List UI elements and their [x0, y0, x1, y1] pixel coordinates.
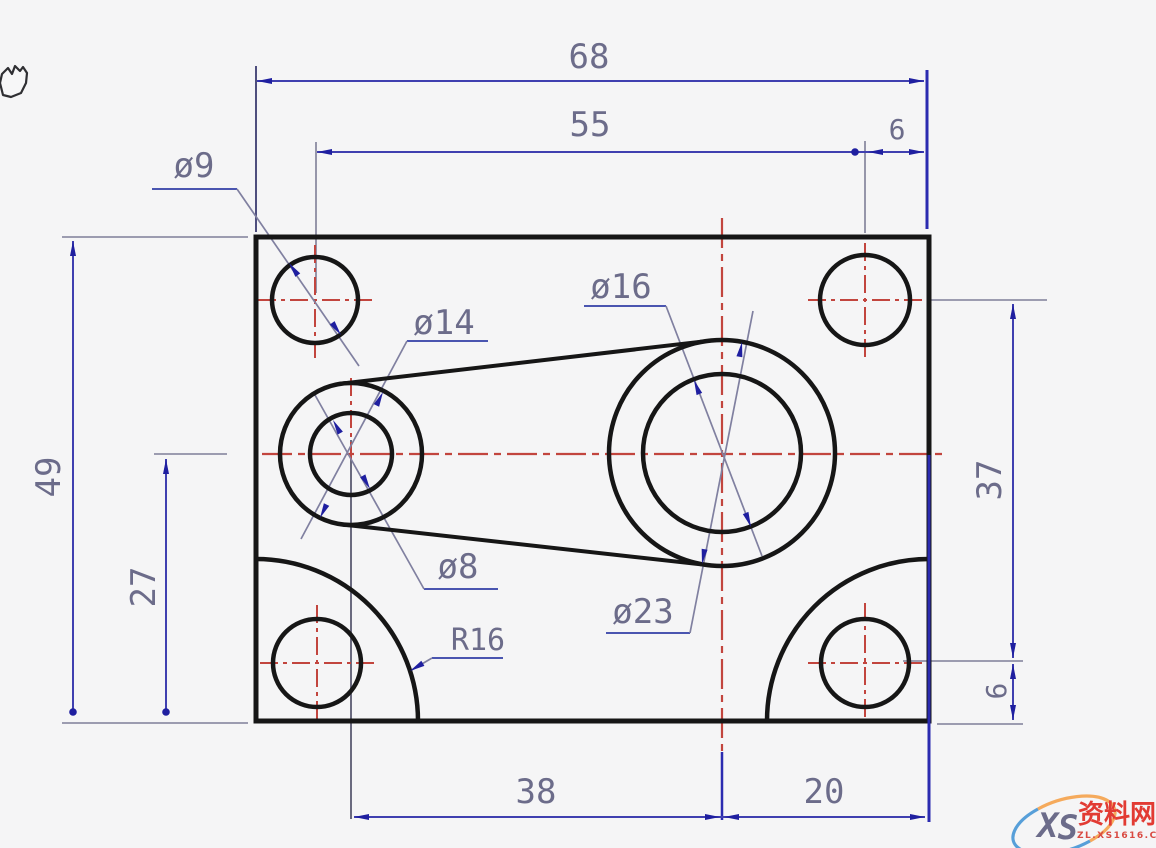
- dim-terminator-dot: [69, 708, 77, 716]
- dim-arrowhead: [868, 149, 883, 155]
- dim-terminator-dot: [851, 148, 859, 156]
- drawing-canvas: 68 55 6 49 27 37 6 38 20 ø9 ø14 ø8 ø16 ø…: [0, 0, 1156, 848]
- dim-terminator-dot: [162, 708, 170, 716]
- dim-edge-offset-bottom: 6: [980, 683, 1013, 700]
- dim-arrowhead: [163, 459, 169, 474]
- dim-arrowhead: [1010, 664, 1016, 679]
- dim-arrowhead: [354, 814, 369, 820]
- dim-arrowhead: [1010, 304, 1016, 319]
- watermark-site-name: 资料网: [1078, 801, 1156, 829]
- dim-edge-offset-top: 6: [889, 113, 906, 146]
- dim-arrowhead: [70, 241, 76, 256]
- label-hub-hole-dia: ø16: [590, 267, 651, 307]
- label-boss-hole-dia: ø8: [438, 547, 479, 587]
- part-geometry: [256, 237, 929, 721]
- label-hub-outer-dia: ø23: [612, 592, 673, 632]
- dim-arrowhead: [1010, 643, 1016, 658]
- dim-arrowhead: [705, 814, 720, 820]
- label-corner-fillet-radius: R16: [451, 623, 505, 658]
- watermark-logo-s: S: [1058, 808, 1078, 848]
- hand-cursor-icon: [0, 66, 27, 97]
- dim-axis-to-edge: 20: [804, 772, 845, 812]
- dim-axis-from-bottom: 27: [124, 567, 164, 608]
- dim-hole-span-x: 55: [570, 105, 611, 145]
- dim-arrowhead: [910, 814, 925, 820]
- dim-arrowhead: [724, 814, 739, 820]
- dim-axis-span-x: 38: [516, 772, 557, 812]
- watermark-site-url: ZL.XS1616.COM: [1077, 831, 1156, 841]
- label-corner-hole-dia: ø9: [174, 146, 215, 186]
- cad-drawing: 68 55 6 49 27 37 6 38 20 ø9 ø14 ø8 ø16 ø…: [0, 0, 1156, 848]
- label-boss-outer-dia: ø14: [413, 303, 474, 343]
- dim-hole-span-y: 37: [970, 460, 1010, 501]
- dim-arrowhead: [1010, 705, 1016, 720]
- dim-total-height: 49: [29, 457, 69, 498]
- dim-arrowhead: [909, 78, 924, 84]
- dim-arrowhead: [909, 149, 924, 155]
- dim-arrowhead: [257, 78, 272, 84]
- dim-total-width: 68: [569, 37, 610, 77]
- dim-arrowhead: [317, 149, 332, 155]
